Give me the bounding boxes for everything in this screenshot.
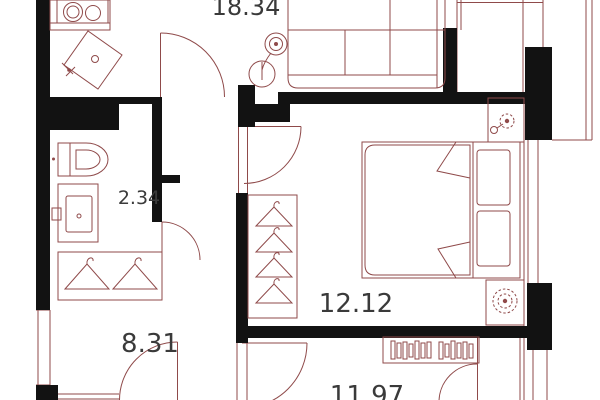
floor-plan: 18.34 2.34 8.31 12.12 11.97: [0, 0, 600, 400]
floor-lamp-icon: [249, 33, 287, 87]
room-label-hallway: 8.31: [121, 329, 179, 359]
second-room-door: [237, 343, 307, 400]
kitchen-counter: [50, 0, 110, 30]
closet-hangers-icon: [248, 195, 297, 318]
stove-burners-icon: [64, 3, 101, 22]
bathroom-door: [162, 222, 200, 260]
room-label-living-kitchen: 18.34: [212, 0, 281, 21]
washbasin-icon: [52, 184, 98, 242]
sofa-icon: [288, 0, 445, 88]
plant-bottom-icon: [486, 280, 524, 325]
wardrobe-hangers-icon: [58, 252, 162, 300]
toilet-icon: [52, 143, 108, 176]
room-label-bathroom: 2.34: [118, 187, 160, 209]
walls: [36, 0, 552, 400]
bedroom-door: [239, 127, 302, 194]
balcony-door-arc: [439, 364, 477, 400]
left-window: [36, 310, 50, 385]
bookshelf-icon: [383, 337, 479, 363]
bed-icon: [362, 142, 520, 278]
kitchen-door: [161, 33, 225, 97]
plant-top-icon: [488, 98, 524, 142]
kitchen-sink-icon: [62, 31, 122, 89]
room-label-bedroom: 12.12: [319, 289, 393, 319]
floor-plan-drawing: 18.34 2.34 8.31 12.12 11.97: [0, 0, 600, 400]
room-label-second-room: 11.97: [330, 381, 404, 400]
